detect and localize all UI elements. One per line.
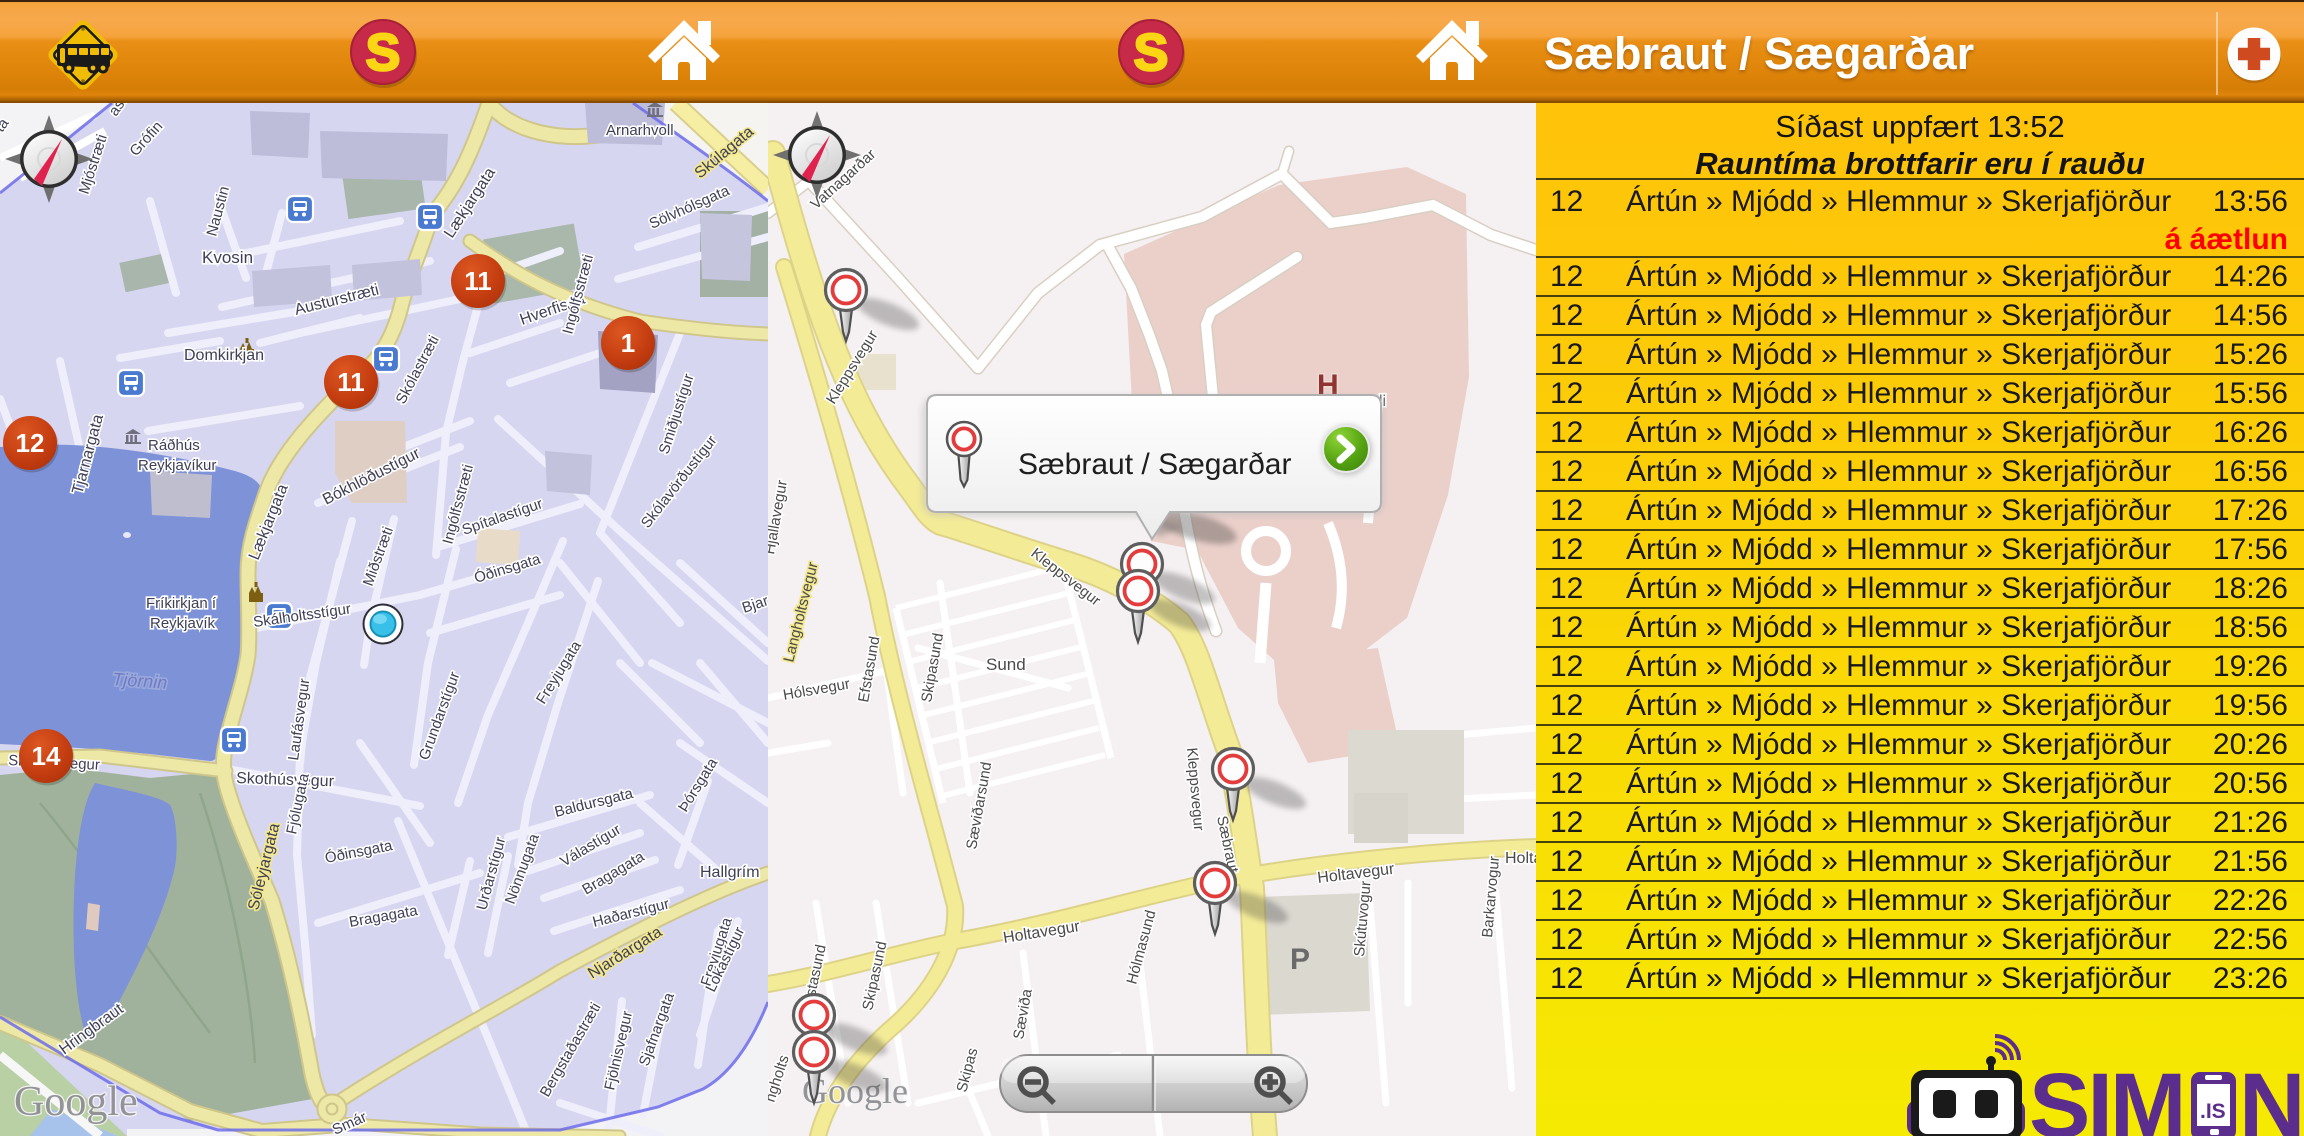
svg-text:Domkirkjan: Domkirkjan	[184, 347, 264, 364]
svg-text:Hallgrím: Hallgrím	[700, 864, 760, 881]
svg-text:Skothúsvegur: Skothúsvegur	[236, 770, 335, 790]
svg-text:Tjörnin: Tjörnin	[112, 669, 168, 693]
svg-text:Arnarhvoll: Arnarhvoll	[606, 122, 674, 139]
svg-text:SIM: SIM	[2029, 1055, 2184, 1136]
svg-text:12: 12	[16, 428, 45, 458]
svg-text:11: 11	[337, 367, 365, 397]
svg-text:Reykjavík: Reykjavík	[150, 615, 216, 632]
svg-text:Holta: Holta	[1505, 850, 1536, 867]
svg-text:N: N	[2239, 1055, 2304, 1136]
svg-text:Reykjavíkur: Reykjavíkur	[138, 457, 216, 474]
svg-text:Fríkirkjan í: Fríkirkjan í	[146, 595, 217, 612]
svg-text:Google: Google	[14, 1079, 138, 1125]
svg-text:14: 14	[32, 741, 61, 771]
svg-text:1: 1	[621, 328, 635, 358]
svg-text:Ráðhús: Ráðhús	[148, 437, 200, 454]
svg-text:S: S	[366, 24, 401, 82]
svg-text:S: S	[1134, 24, 1169, 82]
svg-text:P: P	[1290, 943, 1310, 976]
svg-text:.IS: .IS	[2200, 1100, 2226, 1123]
svg-text:Kvosin: Kvosin	[202, 248, 253, 267]
svg-text:11: 11	[464, 266, 492, 296]
svg-text:Sund: Sund	[986, 655, 1026, 674]
svg-text:Sæbraut / Sægarðar: Sæbraut / Sægarðar	[1018, 448, 1291, 481]
